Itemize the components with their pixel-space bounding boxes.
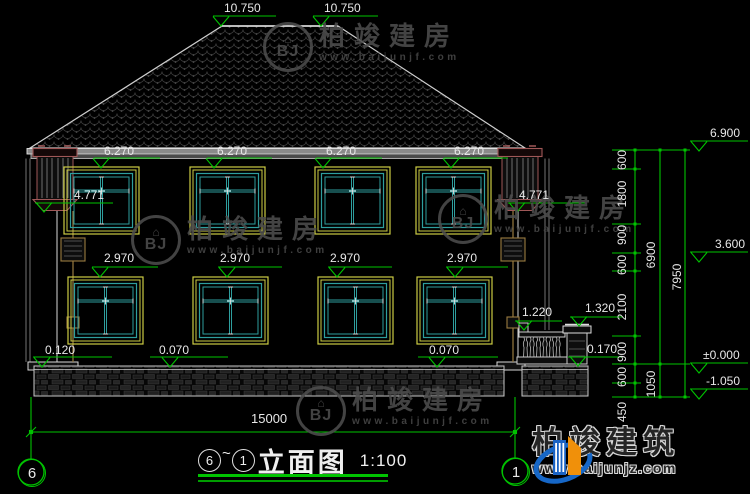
title-separator: ~ bbox=[222, 445, 231, 462]
dim-chain-450: 450 bbox=[616, 402, 628, 422]
watermark-url: www.baijunjf.com bbox=[319, 52, 460, 63]
watermark-name: 柏竣建房 bbox=[187, 215, 328, 245]
watermark-logo-icon: ⌂ BJ bbox=[296, 386, 346, 436]
level-6900: 6.900 bbox=[710, 127, 740, 139]
title-scale: 1:100 bbox=[360, 451, 408, 471]
level-3600: 3.600 bbox=[715, 238, 745, 250]
grid-bubble-6: 6 bbox=[18, 459, 46, 487]
dim-chain-600b: 600 bbox=[616, 255, 628, 275]
watermark-url: www.baijunjf.com bbox=[352, 416, 493, 427]
elev-eave-4: 6.270 bbox=[454, 145, 484, 157]
level-zero: ±0.000 bbox=[703, 349, 740, 361]
elev-floor2-2: 2.970 bbox=[220, 252, 250, 264]
brand-logo-icon bbox=[532, 427, 596, 489]
dim-subtotal-6900: 6900 bbox=[645, 242, 657, 269]
dim-chain-900a: 900 bbox=[616, 225, 628, 245]
dim-total-width: 15000 bbox=[251, 413, 287, 425]
dim-total-height: 7950 bbox=[671, 264, 683, 291]
elev-fence-pillar: 1.320 bbox=[585, 302, 615, 314]
elev-fence-base: 0.170 bbox=[587, 343, 617, 355]
windows-first-floor bbox=[68, 277, 492, 344]
cad-elevation-screenshot: ⌂ BJ 柏竣建房 www.baijunjf.com ⌂ BJ 柏竣建房 www… bbox=[0, 0, 750, 494]
title-axis-to: 1 bbox=[232, 449, 255, 472]
elev-floor2-3: 2.970 bbox=[330, 252, 360, 264]
grid-bubble-1: 1 bbox=[502, 458, 530, 486]
elev-pilaster-right: 4.771 bbox=[519, 189, 549, 201]
dim-chain-600a: 600 bbox=[616, 150, 628, 170]
elev-floor2-1: 2.970 bbox=[104, 252, 134, 264]
brand-logo: 柏竣建筑 www.baijunjz.com bbox=[532, 427, 680, 476]
elev-floor1-2: 0.070 bbox=[429, 344, 459, 356]
balustrade-fence bbox=[517, 323, 591, 364]
elev-base-left: 0.120 bbox=[45, 344, 75, 356]
title-underline-thin bbox=[198, 480, 388, 482]
dim-chain-1800: 1800 bbox=[616, 181, 628, 208]
elev-fence-rail: 1.220 bbox=[522, 306, 552, 318]
eave-cornice bbox=[27, 149, 527, 159]
watermark: ⌂ BJ 柏竣建房 www.baijunjf.com bbox=[296, 386, 493, 436]
elev-eave-2: 6.270 bbox=[217, 145, 247, 157]
watermark-logo-icon: ⌂ BJ bbox=[131, 215, 181, 265]
elev-eave-3: 6.270 bbox=[326, 145, 356, 157]
elev-floor1-1: 0.070 bbox=[159, 344, 189, 356]
watermark-name: 柏竣建房 bbox=[352, 386, 493, 416]
watermark-name: 柏竣建房 bbox=[494, 194, 635, 224]
dim-chain-600c: 600 bbox=[616, 367, 628, 387]
elev-pilaster-left: 4.771 bbox=[74, 189, 104, 201]
watermark-url: www.baijunjf.com bbox=[187, 245, 328, 256]
watermark-url: www.baijunjf.com bbox=[494, 224, 635, 235]
watermark: ⌂ BJ 柏竣建房 www.baijunjf.com bbox=[263, 22, 460, 72]
elev-ridge-right: 10.750 bbox=[324, 2, 361, 14]
watermark-logo-icon: ⌂ BJ bbox=[263, 22, 313, 72]
elev-floor2-4: 2.970 bbox=[447, 252, 477, 264]
dim-subtotal-1050: 1050 bbox=[645, 371, 657, 398]
title-underline bbox=[198, 474, 388, 477]
title-axis-from: 6 bbox=[198, 449, 221, 472]
dim-chain-2100: 2100 bbox=[616, 294, 628, 321]
dim-chain-900b: 900 bbox=[616, 342, 628, 362]
watermark-name: 柏竣建房 bbox=[319, 22, 460, 52]
watermark-logo-icon: ⌂ BJ bbox=[438, 194, 488, 244]
elev-eave-1: 6.270 bbox=[104, 145, 134, 157]
elev-ridge-left: 10.750 bbox=[224, 2, 261, 14]
level-minus1050: -1.050 bbox=[706, 375, 740, 387]
